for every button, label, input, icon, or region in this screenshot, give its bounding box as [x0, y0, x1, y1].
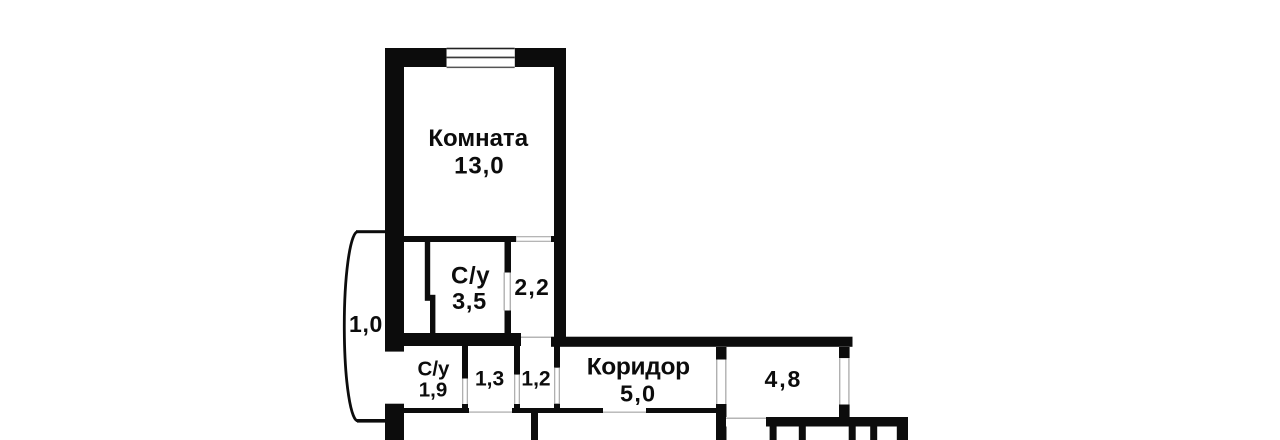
svg-text:2,2: 2,2 [514, 274, 550, 300]
svg-text:3,5: 3,5 [452, 288, 487, 314]
svg-text:Комната: Комната [428, 125, 528, 152]
svg-text:С/у: С/у [418, 357, 451, 380]
svg-text:С/у: С/у [451, 262, 490, 289]
svg-text:5,0: 5,0 [620, 380, 656, 406]
svg-text:4,8: 4,8 [765, 366, 803, 392]
svg-text:13,0: 13,0 [454, 152, 504, 179]
svg-text:Коридор: Коридор [587, 353, 690, 380]
svg-text:1,9: 1,9 [419, 378, 448, 401]
svg-text:1,3: 1,3 [475, 368, 504, 391]
svg-text:1,2: 1,2 [521, 367, 550, 390]
svg-text:1,0: 1,0 [349, 311, 383, 337]
